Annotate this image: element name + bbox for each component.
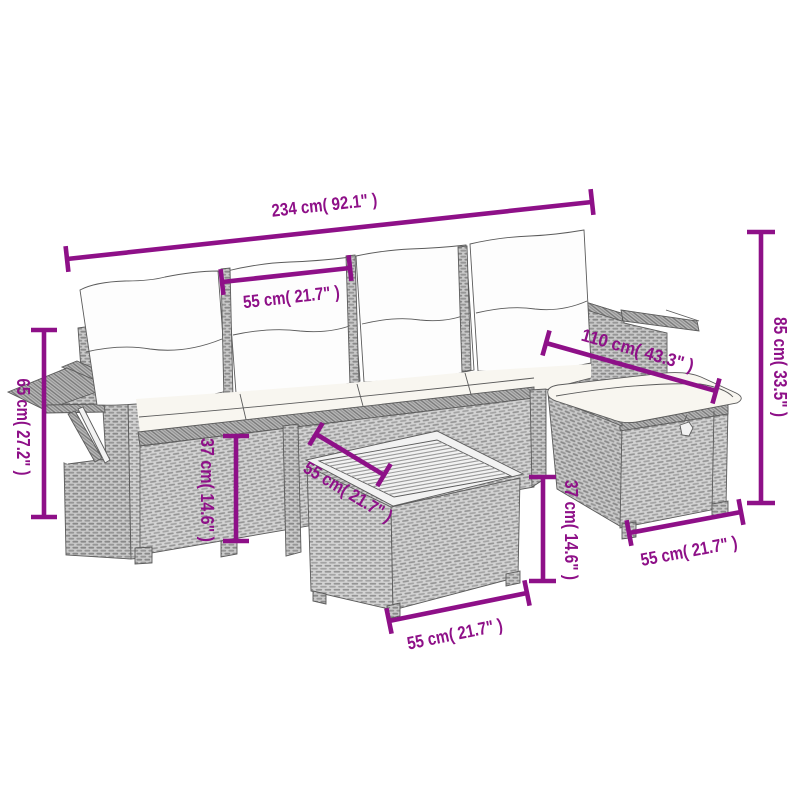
svg-text:37 cm( 14.6" ): 37 cm( 14.6" ) (197, 438, 217, 542)
svg-text:65 cm( 27.2" ): 65 cm( 27.2" ) (13, 379, 33, 476)
svg-text:37 cm( 14.6" ): 37 cm( 14.6" ) (561, 480, 581, 580)
svg-text:85 cm( 33.5" ): 85 cm( 33.5" ) (770, 317, 790, 417)
